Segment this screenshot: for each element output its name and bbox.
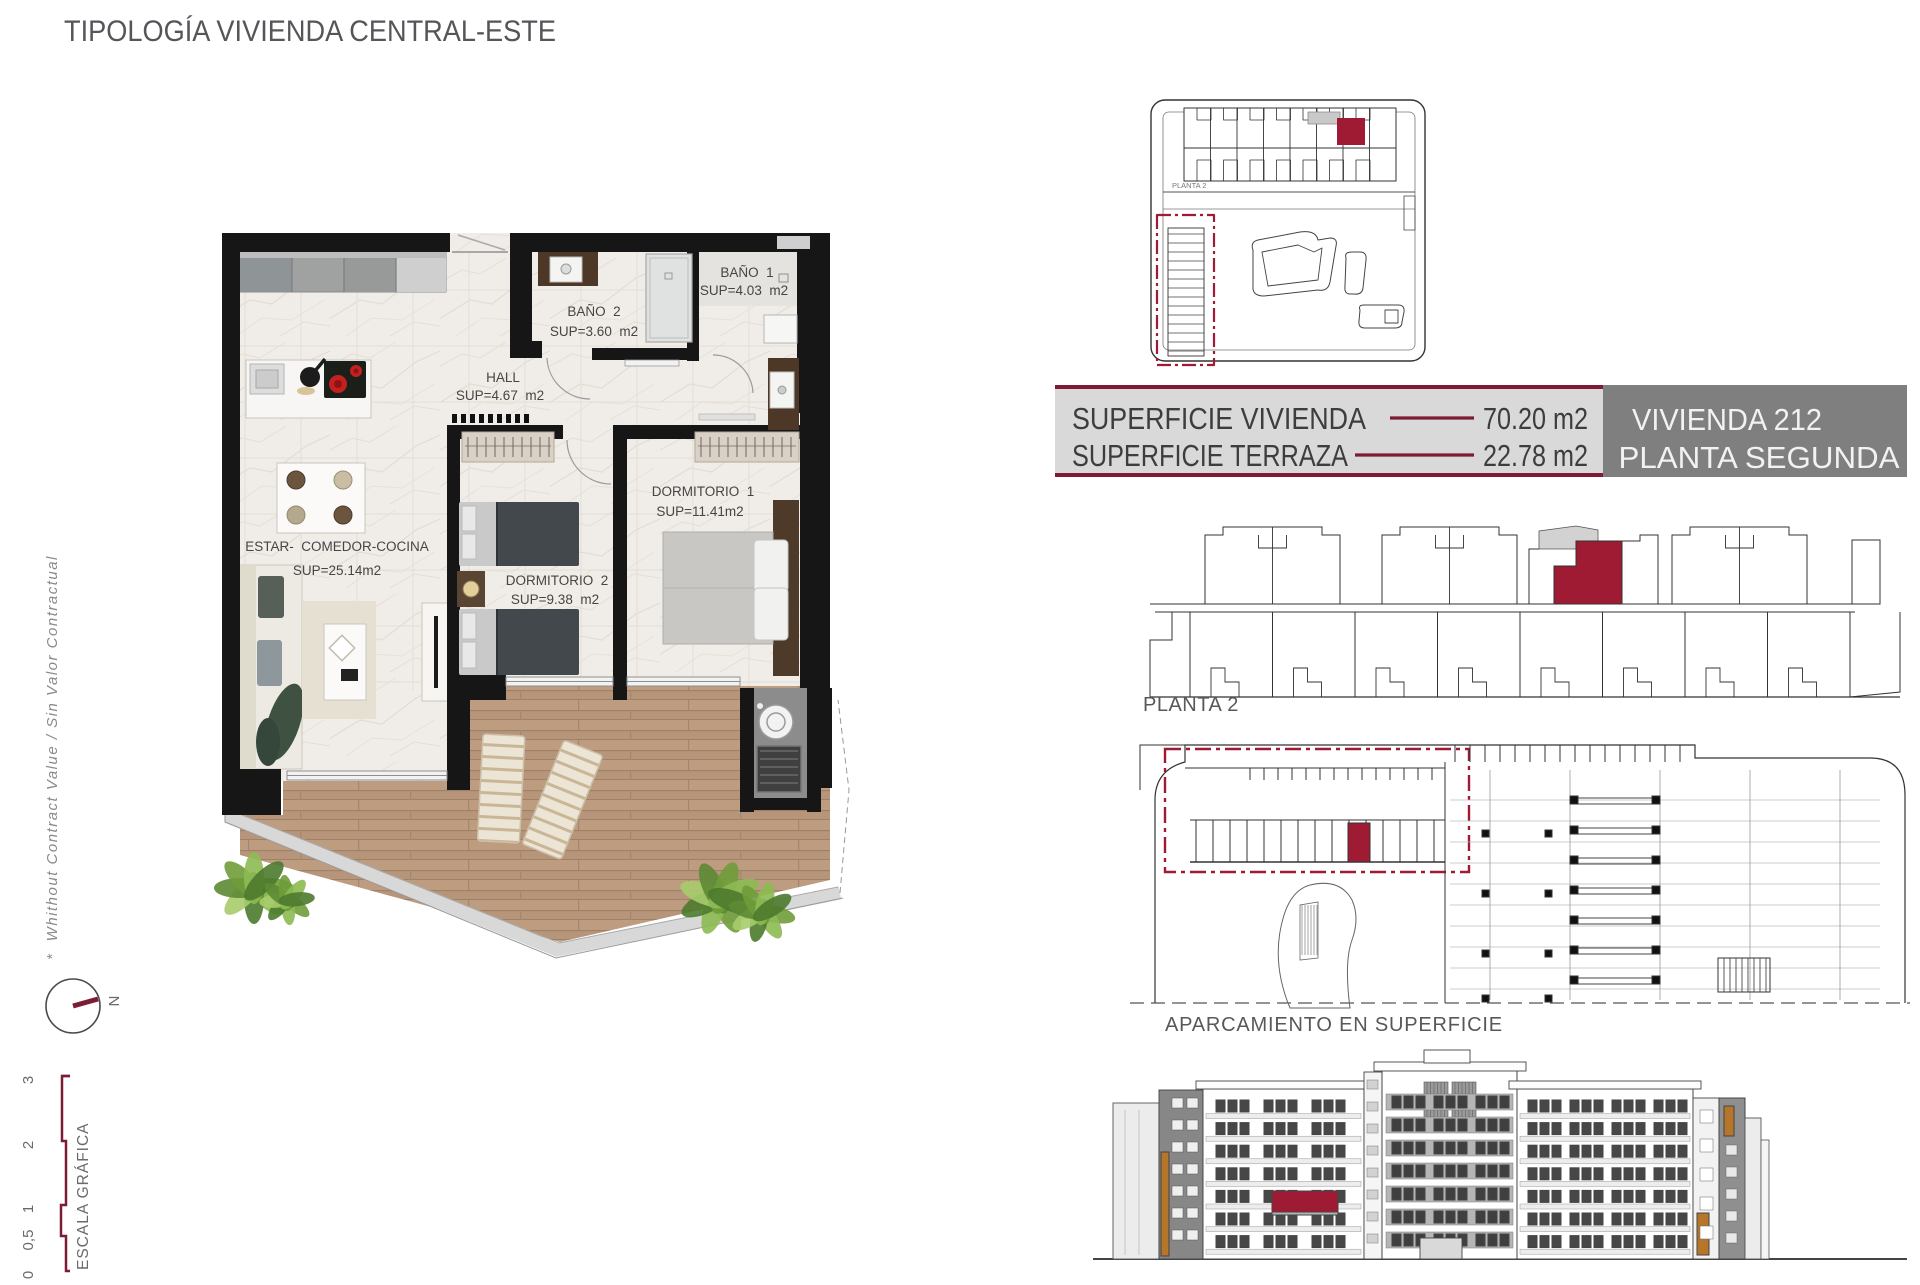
- svg-text:SUP=25.14m2: SUP=25.14m2: [293, 563, 381, 578]
- svg-text:22.78 m2: 22.78 m2: [1483, 438, 1588, 473]
- svg-text:0: 0: [20, 1271, 37, 1279]
- svg-text:SUPERFICIE VIVIENDA: SUPERFICIE VIVIENDA: [1072, 401, 1366, 436]
- svg-text:70.20 m2: 70.20 m2: [1483, 401, 1588, 436]
- svg-text:SUP=9.38 m2: SUP=9.38 m2: [511, 592, 599, 607]
- svg-text:2: 2: [20, 1141, 37, 1149]
- svg-text:HALL: HALL: [486, 370, 520, 385]
- svg-text:3: 3: [20, 1076, 37, 1084]
- svg-text:SUP=4.67 m2: SUP=4.67 m2: [456, 388, 544, 403]
- svg-text:SUP=4.03 m2: SUP=4.03 m2: [700, 283, 788, 298]
- svg-text:PLANTA SEGUNDA: PLANTA SEGUNDA: [1619, 440, 1900, 475]
- svg-text:SUP=3.60 m2: SUP=3.60 m2: [550, 324, 638, 339]
- svg-text:BAÑO 2: BAÑO 2: [567, 304, 620, 319]
- svg-text:SUP=11.41m2: SUP=11.41m2: [656, 504, 743, 519]
- svg-text:VIVIENDA 212: VIVIENDA 212: [1632, 402, 1822, 437]
- svg-text:DORMITORIO 1: DORMITORIO 1: [652, 484, 755, 499]
- svg-text:ESTAR- COMEDOR-COCINA: ESTAR- COMEDOR-COCINA: [245, 539, 429, 554]
- svg-text:PLANTA 2: PLANTA 2: [1172, 181, 1206, 190]
- svg-text:SUPERFICIE TERRAZA: SUPERFICIE TERRAZA: [1072, 438, 1348, 473]
- svg-text:BAÑO 1: BAÑO 1: [720, 265, 773, 280]
- svg-text:PLANTA 2: PLANTA 2: [1143, 694, 1239, 716]
- svg-text:* Whithout Contract Value / S: * Whithout Contract Value / Sin Valor Co…: [44, 555, 61, 960]
- svg-text:APARCAMIENTO EN SUPERFICIE: APARCAMIENTO EN SUPERFICIE: [1165, 1014, 1503, 1036]
- svg-text:TIPOLOGÍA VIVIENDA CENTRAL-EST: TIPOLOGÍA VIVIENDA CENTRAL-ESTE: [64, 15, 556, 48]
- svg-text:1: 1: [20, 1205, 37, 1213]
- svg-text:N: N: [105, 996, 122, 1007]
- svg-text:0,5: 0,5: [20, 1230, 37, 1251]
- svg-text:ESCALA GRÁFICA: ESCALA GRÁFICA: [75, 1122, 92, 1270]
- svg-text:DORMITORIO 2: DORMITORIO 2: [506, 573, 609, 588]
